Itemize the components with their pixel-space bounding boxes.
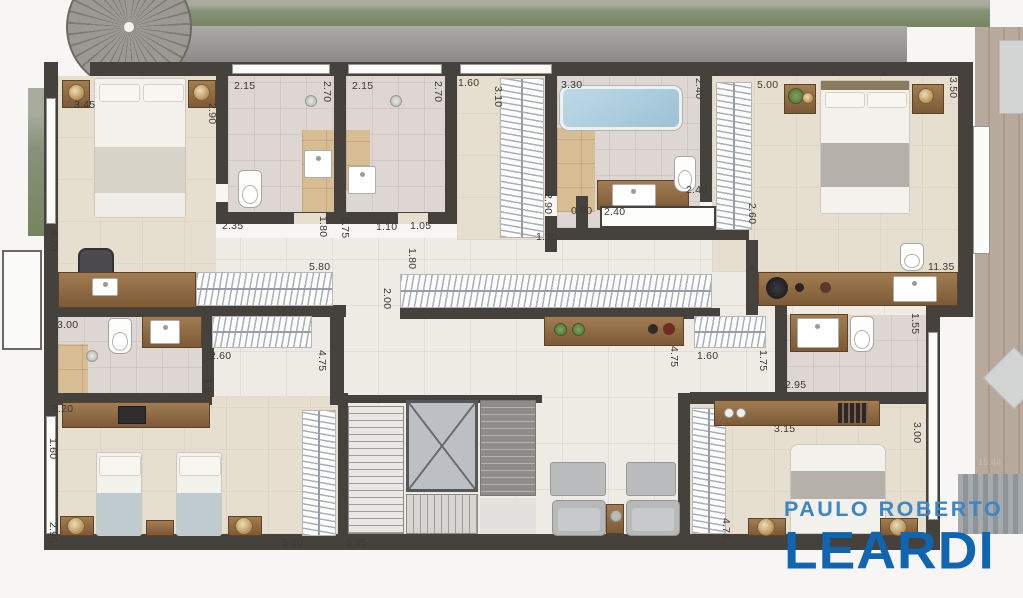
dimension-label: 1.80 <box>406 248 418 269</box>
dimension-label: 1.60 <box>47 438 59 459</box>
dimension-label: 2.35 <box>222 220 243 232</box>
dimension-label: 3.30 <box>561 79 582 91</box>
dimension-label: 5.00 <box>757 79 778 91</box>
dimension-label: 2.70 <box>321 81 333 102</box>
dimension-label: 1.80 <box>201 378 213 399</box>
dimension-label: 5.80 <box>309 261 330 273</box>
dimension-label: 0.90 <box>571 205 592 217</box>
dimension-label: 2.95 <box>47 522 59 543</box>
dimension-label: 1.55 <box>909 313 921 334</box>
brand-logo-line1: PAULO ROBERTO <box>784 499 1003 521</box>
dimension-label: 5.80 <box>282 537 303 549</box>
dimension-label: 3.50 <box>947 77 959 98</box>
dimension-label: 6.95 <box>346 537 367 549</box>
dimension-label: 1.60 <box>458 77 479 89</box>
dimension-label: 2.40 <box>686 184 707 196</box>
dimension-label: 2.60 <box>746 203 758 224</box>
dimension-label: 1.75 <box>757 350 769 371</box>
dimension-label: 2.15 <box>352 80 373 92</box>
dimension-label: 3.00 <box>57 319 78 331</box>
dimension-label: 0.75 <box>339 217 351 238</box>
dimension-label: 2.95 <box>785 379 806 391</box>
dimension-label: 2.70 <box>432 81 444 102</box>
dimension-label: 3.10 <box>492 86 504 107</box>
dimension-label: 2.40 <box>693 78 705 99</box>
brand-logo: PAULO ROBERTO LEARDI <box>784 499 1003 578</box>
dimension-label: 3.45 <box>74 99 95 111</box>
dimension-label: 2.15 <box>234 80 255 92</box>
dimension-label: 1.60 <box>697 350 718 362</box>
dimension-label: 2.90 <box>206 103 218 124</box>
dimension-label: 4.75 <box>316 350 328 371</box>
dimension-label: 3.00 <box>911 422 923 443</box>
dimension-label: 4.75 <box>668 346 680 367</box>
dimension-label: 2.60 <box>210 350 231 362</box>
dimension-label: 1.10 <box>376 221 397 233</box>
floor-plan: 3.452.904.702.152.702.352.152.701.800.75… <box>0 0 1023 598</box>
dimension-label: 1.80 <box>317 216 329 237</box>
dimension-label: 4.75 <box>720 518 732 539</box>
dimension-label: 2.40 <box>604 206 625 218</box>
dimension-label: 1.30 <box>536 231 557 243</box>
dimension-label: 2.00 <box>381 288 393 309</box>
dimension-label: 11.35 <box>928 261 955 273</box>
dimension-label: 3.20 <box>52 403 73 415</box>
dimension-label: 2.90 <box>542 193 554 214</box>
dimension-label: 3.15 <box>774 423 795 435</box>
dimension-label: 4.70 <box>48 230 60 251</box>
dimension-label: 15.44 <box>978 457 1002 467</box>
brand-logo-line2: LEARDI <box>784 524 1003 577</box>
dimension-label: 1.05 <box>410 220 431 232</box>
